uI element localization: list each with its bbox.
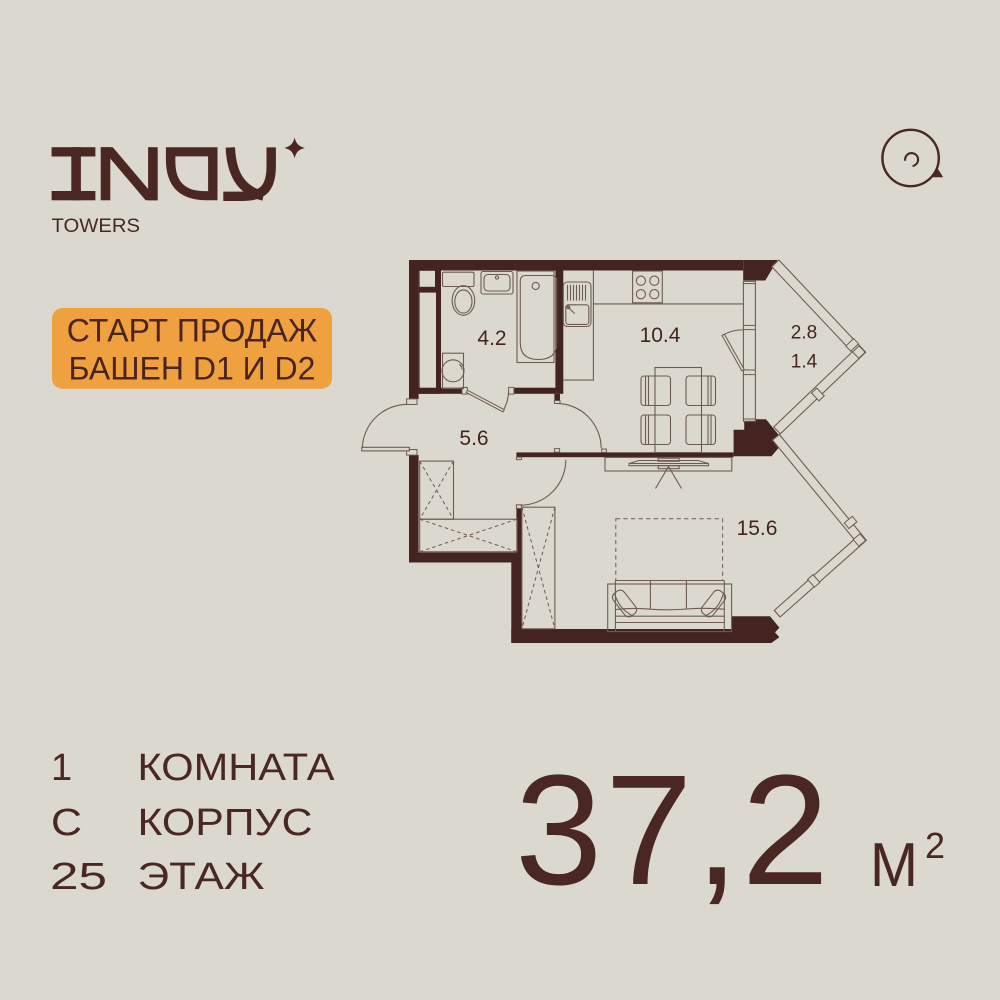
svg-text:2.8: 2.8 [791,323,817,344]
svg-text:TOWERS: TOWERS [52,216,141,237]
svg-text:4.2: 4.2 [477,327,506,350]
svg-text:КОМНАТА: КОМНАТА [138,747,336,789]
svg-text:ЭТАЖ: ЭТАЖ [138,856,265,898]
svg-text:25: 25 [50,856,107,898]
svg-text:С: С [51,802,82,844]
svg-text:2: 2 [925,825,945,866]
svg-text:37,2: 37,2 [515,743,832,918]
svg-text:10.4: 10.4 [640,324,681,347]
svg-text:1: 1 [51,747,72,789]
svg-text:5.6: 5.6 [459,427,488,450]
svg-text:БАШЕН D1 И D2: БАШЕН D1 И D2 [69,351,316,387]
svg-text:СТАРТ ПРОДАЖ: СТАРТ ПРОДАЖ [67,313,318,349]
svg-text:1.4: 1.4 [791,352,818,373]
svg-text:КОРПУС: КОРПУС [138,802,313,844]
svg-text:15.6: 15.6 [737,517,778,540]
svg-text:М: М [870,831,918,900]
